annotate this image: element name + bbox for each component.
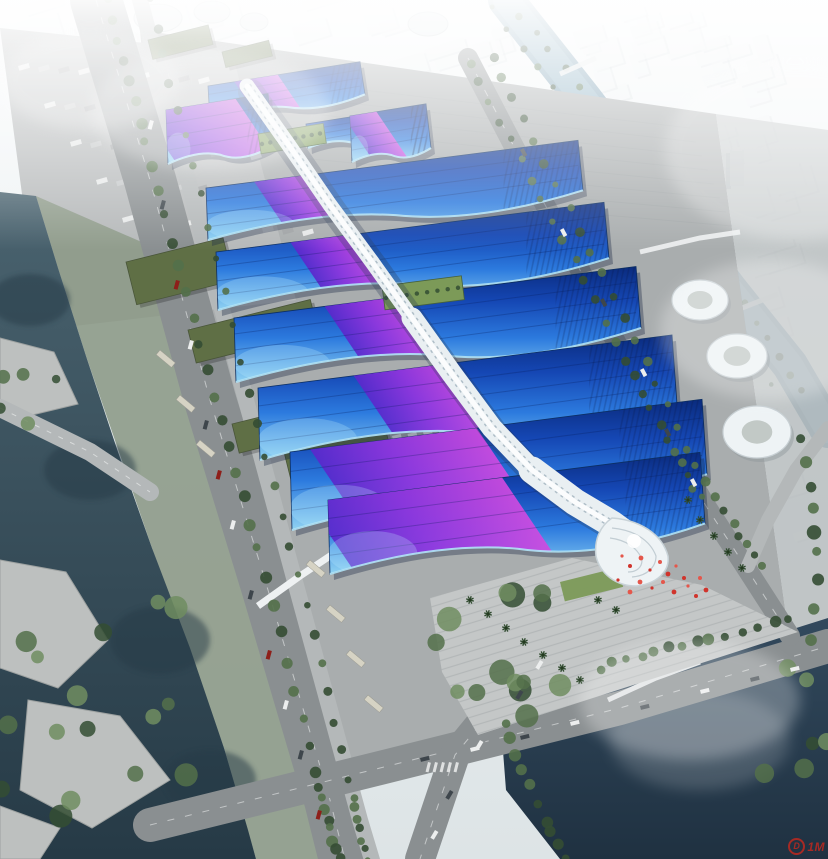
aerial-rendering: D 1M	[0, 0, 828, 859]
watermark: D 1M	[788, 838, 825, 855]
scene-canvas	[0, 0, 828, 859]
watermark-logo: D	[788, 838, 805, 855]
watermark-text: 1M	[807, 840, 825, 854]
